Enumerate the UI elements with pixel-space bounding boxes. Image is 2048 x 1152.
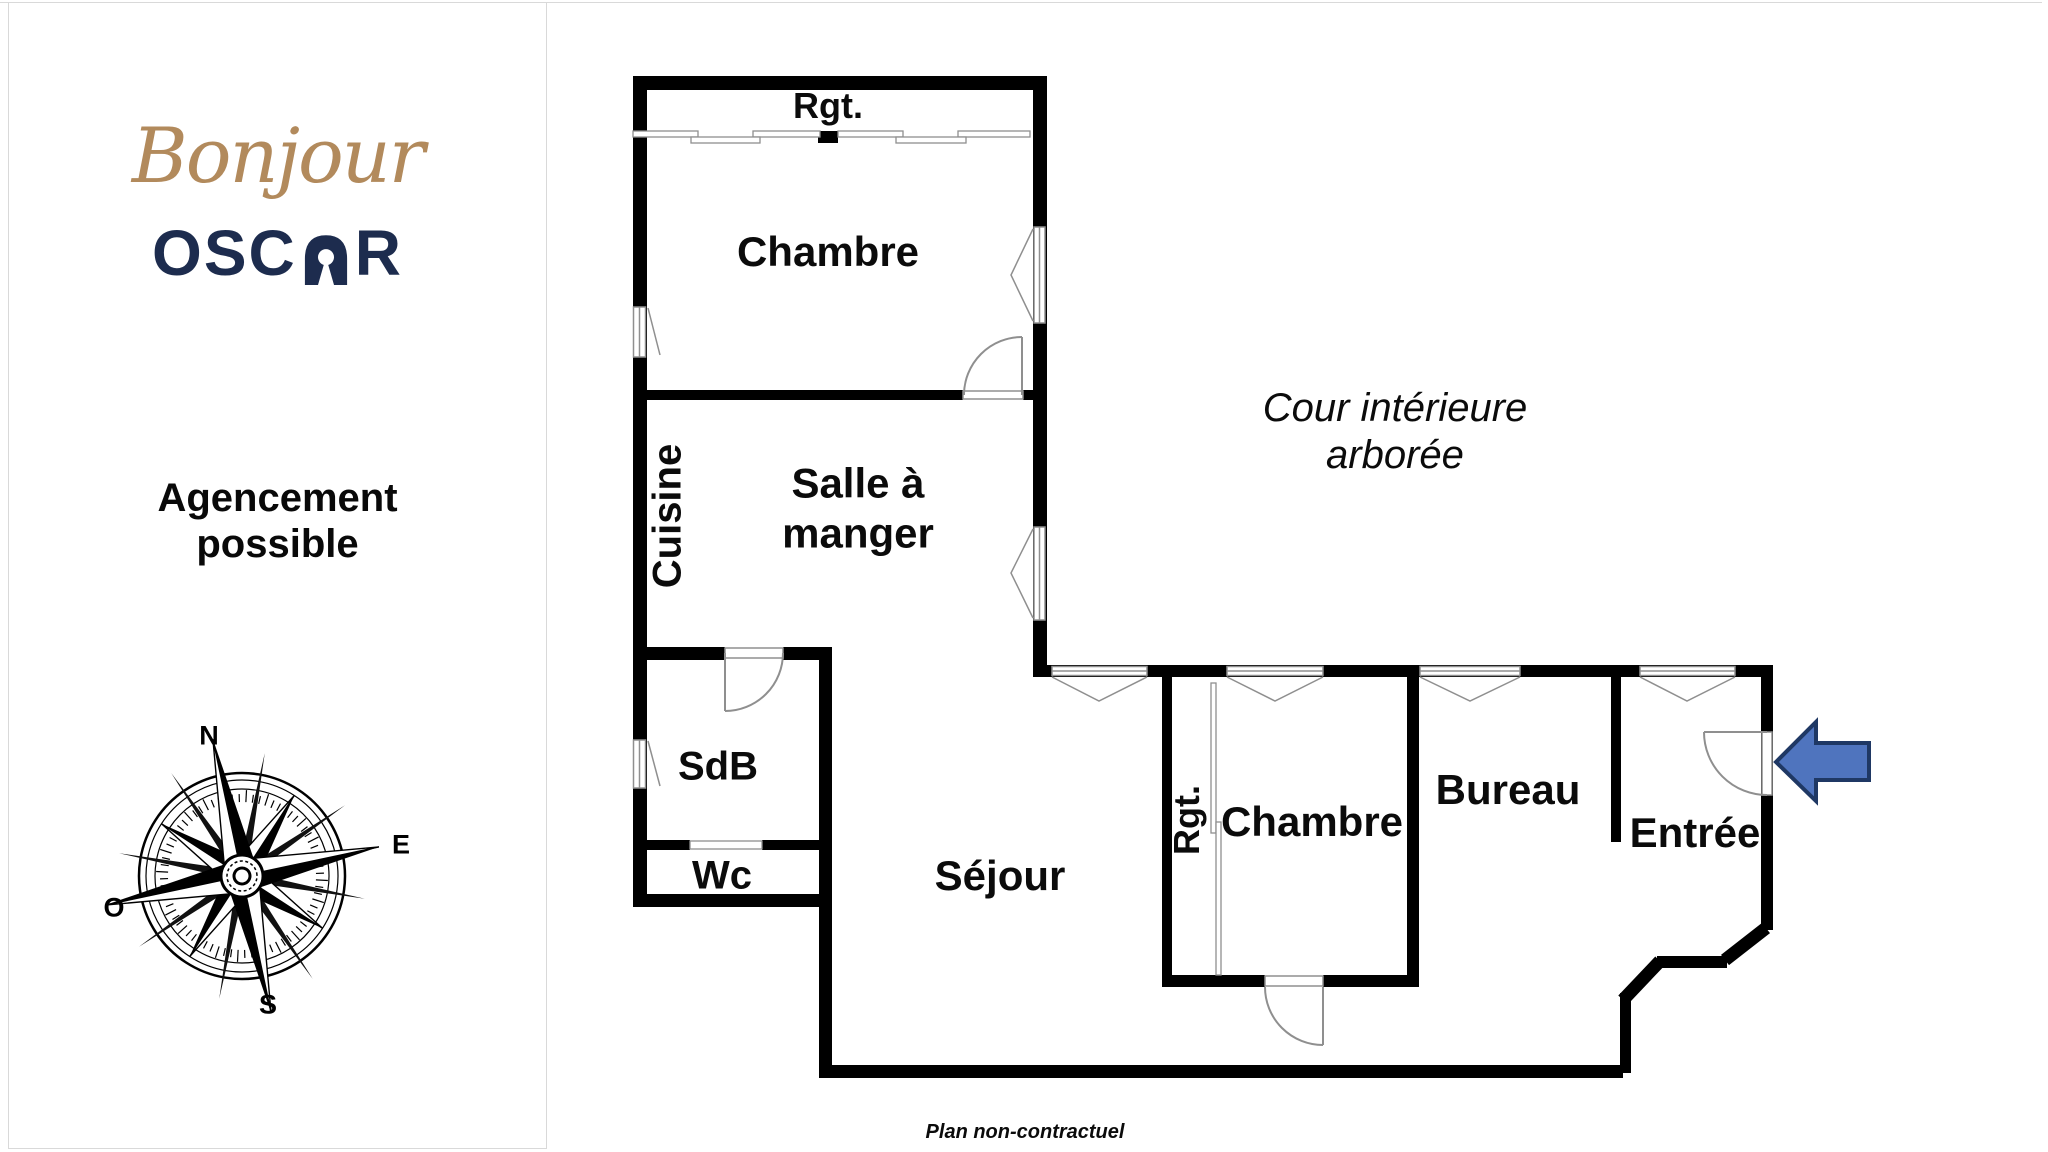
wall-sejour-left bbox=[819, 647, 832, 1078]
wc-sliding-door bbox=[690, 841, 762, 849]
room-label-entrance: Entrée bbox=[1630, 808, 1761, 858]
wall-right-outer bbox=[1761, 665, 1773, 930]
disclaimer-label: Plan non-contractuel bbox=[926, 1121, 1125, 1145]
wall-corner-vertical bbox=[1620, 993, 1631, 1073]
wall-sdb-wc-right bbox=[762, 840, 832, 850]
door-arcs bbox=[725, 337, 1767, 1045]
room-label-bathroom: SdB bbox=[678, 743, 758, 790]
room-label-storage-top: Rgt. bbox=[793, 85, 863, 127]
room-label-bedroom-wing: Chambre bbox=[1221, 797, 1403, 847]
wall-chambre2-right bbox=[1407, 677, 1419, 987]
wall-bottom bbox=[819, 1065, 1623, 1078]
wall-chambre-salle-left bbox=[633, 390, 963, 400]
door-threshold-chambre-top bbox=[963, 391, 1023, 399]
room-label-storage-wing: Rgt. bbox=[1166, 785, 1208, 855]
door-threshold-chambre-wing bbox=[1265, 976, 1323, 986]
room-label-dining: Salle à manger bbox=[782, 458, 934, 557]
entrance-arrow-icon bbox=[1776, 722, 1869, 801]
wall-corner-jog bbox=[1657, 956, 1727, 968]
page: Bonjour OSC R Agencement possible N E O … bbox=[0, 0, 2048, 1152]
room-label-wc: Wc bbox=[692, 852, 752, 899]
room-label-bedroom-top: Chambre bbox=[737, 227, 919, 277]
wall-chambre-salle-right bbox=[1023, 390, 1047, 400]
sliding-end-block bbox=[1209, 975, 1222, 987]
courtyard-label: Cour intérieure arborée bbox=[1263, 385, 1528, 479]
room-label-living: Séjour bbox=[935, 851, 1066, 901]
door-threshold-entry bbox=[1762, 732, 1772, 795]
room-label-office: Bureau bbox=[1436, 765, 1581, 815]
wall-bureau-divider bbox=[1611, 677, 1621, 842]
wall-sdb-wc-left bbox=[633, 840, 690, 850]
room-label-kitchen: Cuisine bbox=[644, 444, 691, 588]
door-threshold-sdb bbox=[725, 648, 783, 658]
wall-sdb-top-right bbox=[783, 647, 832, 660]
wall-sdb-top-left bbox=[633, 647, 725, 660]
closet-center-block bbox=[818, 131, 838, 143]
wall-wing-bottom-right bbox=[1323, 975, 1419, 987]
